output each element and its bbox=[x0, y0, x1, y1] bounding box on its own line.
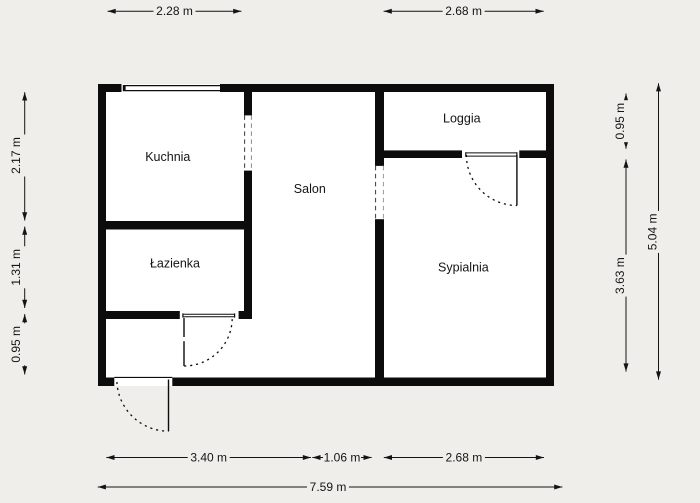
svg-text:Loggia: Loggia bbox=[443, 112, 481, 126]
svg-text:2.17 m: 2.17 m bbox=[9, 137, 23, 174]
svg-text:3.40 m: 3.40 m bbox=[190, 450, 227, 464]
svg-text:5.04 m: 5.04 m bbox=[646, 214, 660, 251]
svg-text:Sypialnia: Sypialnia bbox=[438, 261, 489, 275]
svg-text:1.31 m: 1.31 m bbox=[9, 249, 23, 286]
svg-text:Salon: Salon bbox=[294, 182, 326, 196]
svg-text:1.06 m: 1.06 m bbox=[324, 450, 361, 464]
svg-text:2.28 m: 2.28 m bbox=[156, 4, 193, 18]
svg-text:0.95 m: 0.95 m bbox=[9, 326, 23, 363]
svg-text:3.63 m: 3.63 m bbox=[613, 257, 627, 294]
svg-text:7.59 m: 7.59 m bbox=[310, 480, 347, 494]
svg-text:2.68 m: 2.68 m bbox=[445, 4, 482, 18]
svg-text:2.68 m: 2.68 m bbox=[446, 450, 483, 464]
svg-text:Kuchnia: Kuchnia bbox=[145, 150, 190, 164]
svg-text:Łazienka: Łazienka bbox=[150, 257, 200, 271]
svg-text:0.95 m: 0.95 m bbox=[613, 103, 627, 140]
